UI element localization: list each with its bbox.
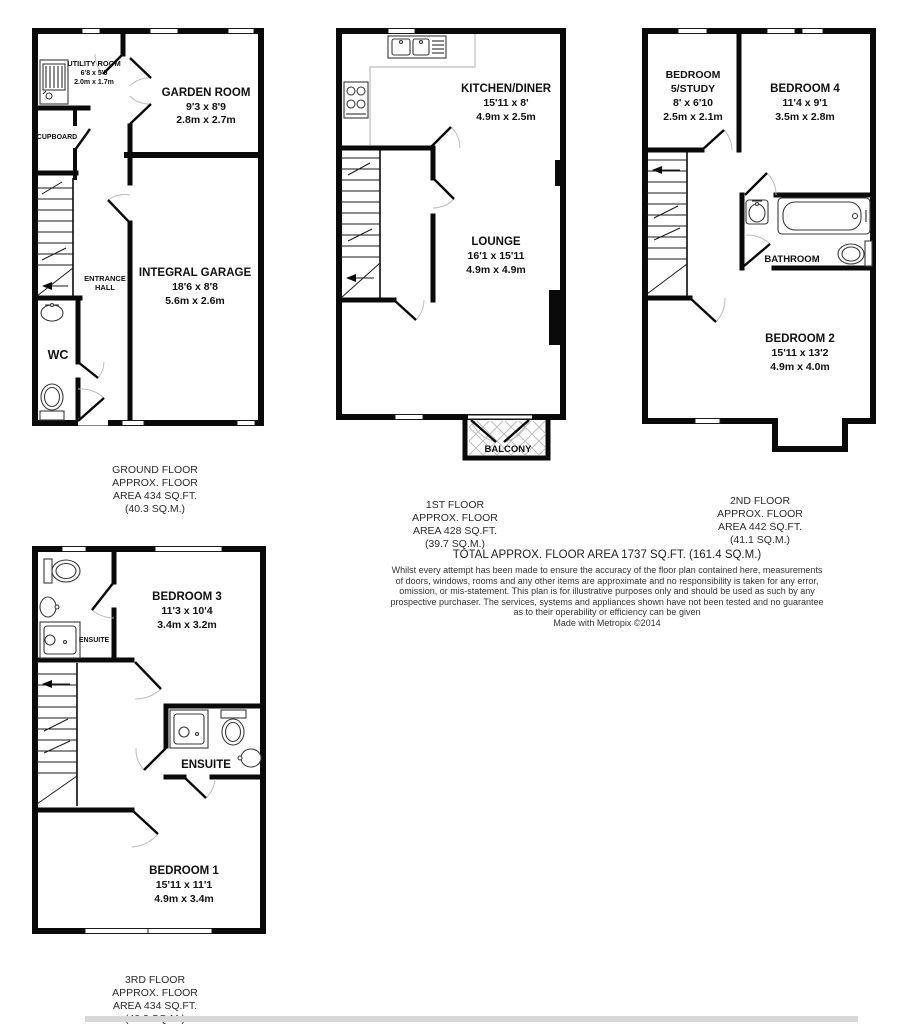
bedroom1-imperial: 15'11 x 11'1 xyxy=(156,879,213,891)
caption-line: 1ST FLOOR xyxy=(380,499,530,512)
basin-icon xyxy=(238,749,261,767)
caption-line: AREA 434 SQ.FT. xyxy=(80,1000,230,1013)
bedroom5-imperial: 8' x 6'10 xyxy=(673,97,713,109)
bathroom-label: BATHROOM xyxy=(764,254,819,265)
door-icon xyxy=(690,130,776,322)
bedroom3-imperial: 11'3 x 10'4 xyxy=(161,605,212,617)
shower-icon xyxy=(40,622,80,658)
bedroom3-metric: 3.4m x 3.2m xyxy=(157,619,217,631)
first-floor-plan: BALCONY KITCHEN/DINER 15'11 x 8' 4.9m x … xyxy=(336,28,568,468)
utility-room-imperial: 6'8 x 5'5 xyxy=(81,70,108,77)
bedroom2-metric: 4.9m x 4.0m xyxy=(770,361,830,373)
kitchen-metric: 4.9m x 2.5m xyxy=(476,111,536,123)
shower-icon xyxy=(170,710,208,748)
utility-room-metric: 2.0m x 1.7m xyxy=(74,79,114,86)
toilet-icon xyxy=(40,384,64,420)
summary-block: TOTAL APPROX. FLOOR AREA 1737 SQ.FT. (16… xyxy=(372,549,842,629)
bedroom5-label-2: 5/STUDY xyxy=(671,83,715,95)
caption-line: AREA 428 SQ.FT. xyxy=(380,525,530,538)
bottom-divider-bar xyxy=(85,1016,858,1022)
disclaimer-line: Whilst every attempt has been made to en… xyxy=(372,565,842,576)
sink-icon xyxy=(388,36,446,58)
washing-machine-icon xyxy=(40,60,68,104)
caption-line: AREA 434 SQ.FT. xyxy=(80,490,230,503)
balcony-label: BALCONY xyxy=(485,444,533,455)
kitchen-imperial: 15'11 x 8' xyxy=(483,97,528,109)
garden-room-imperial: 9'3 x 8'9 xyxy=(186,101,226,113)
caption-line: APPROX. FLOOR xyxy=(380,512,530,525)
toilet-icon xyxy=(221,710,246,745)
toilet-icon xyxy=(838,241,872,266)
toilet-icon xyxy=(44,559,80,583)
bedroom1-label: BEDROOM 1 xyxy=(149,865,219,877)
disclaimer-line: of doors, windows, rooms and any other i… xyxy=(372,576,842,587)
caption-line: (41.1 SQ.M.) xyxy=(685,534,835,547)
hob-icon xyxy=(344,82,368,118)
bedroom4-metric: 3.5m x 2.8m xyxy=(775,111,835,123)
caption-line: 3RD FLOOR xyxy=(80,974,230,987)
total-area-text: TOTAL APPROX. FLOOR AREA 1737 SQ.FT. (16… xyxy=(372,549,842,561)
floorplan-page: UTILITY ROOM 6'8 x 5'5 2.0m x 1.7m GARDE… xyxy=(0,0,914,1024)
disclaimer-line: as to their operability or efficiency ca… xyxy=(372,607,842,618)
disclaimer-line: prospective purchaser. The services, sys… xyxy=(372,597,842,608)
caption-line: 2ND FLOOR xyxy=(685,495,835,508)
stairs-icon xyxy=(37,663,77,806)
ensuite-top-label: ENSUITE xyxy=(79,637,110,644)
third-floor-plan: ENSUITE BEDROOM 3 11'3 x 10'4 3.4m x 3.2… xyxy=(32,546,270,936)
wc-label: WC xyxy=(48,348,69,362)
lounge-metric: 4.9m x 4.9m xyxy=(466,264,526,276)
garage-metric: 5.6m x 2.6m xyxy=(165,295,225,307)
basin-icon xyxy=(41,304,63,322)
lounge-label: LOUNGE xyxy=(471,236,521,248)
second-floor-plan: BEDROOM 5/STUDY 8' x 6'10 2.5m x 2.1m BE… xyxy=(642,28,878,454)
caption-line: AREA 442 SQ.FT. xyxy=(685,521,835,534)
ensuite-mid-label: ENSUITE xyxy=(181,759,231,771)
kitchen-label: KITCHEN/DINER xyxy=(461,83,552,95)
basin-icon xyxy=(40,597,59,617)
metropix-credit: Made with Metropix ©2014 xyxy=(372,618,842,629)
bedroom3-label: BEDROOM 3 xyxy=(152,591,222,603)
bedroom4-label: BEDROOM 4 xyxy=(770,83,840,95)
bath-icon xyxy=(778,198,870,234)
garage-label: INTEGRAL GARAGE xyxy=(139,267,252,279)
second-floor-caption: 2ND FLOOR APPROX. FLOOR AREA 442 SQ.FT. … xyxy=(685,495,835,547)
window-icon xyxy=(388,29,423,420)
bedroom4-imperial: 11'4 x 9'1 xyxy=(782,97,827,109)
door-icon xyxy=(394,127,460,320)
garage-imperial: 18'6 x 8'8 xyxy=(172,281,218,293)
caption-line: (40.3 SQ.M.) xyxy=(80,503,230,516)
bedroom1-metric: 4.9m x 3.4m xyxy=(154,893,214,905)
bedroom2-label: BEDROOM 2 xyxy=(765,333,835,345)
garden-room-label: GARDEN ROOM xyxy=(162,87,251,99)
bedroom5-metric: 2.5m x 2.1m xyxy=(663,111,723,123)
caption-line: GROUND FLOOR xyxy=(80,464,230,477)
stairs-icon xyxy=(647,150,687,296)
first-floor-caption: 1ST FLOOR APPROX. FLOOR AREA 428 SQ.FT. … xyxy=(380,499,530,551)
basin-icon xyxy=(746,200,768,224)
bedroom5-label-1: BEDROOM xyxy=(666,69,721,81)
caption-line: APPROX. FLOOR xyxy=(685,508,835,521)
balcony: BALCONY xyxy=(465,415,548,458)
utility-room-label: UTILITY ROOM xyxy=(67,59,121,68)
caption-line: APPROX. FLOOR xyxy=(80,477,230,490)
room-labels: KITCHEN/DINER 15'11 x 8' 4.9m x 2.5m LOU… xyxy=(461,83,552,276)
stairs-icon xyxy=(341,148,380,300)
disclaimer-line: omission, or mis-statement. This plan is… xyxy=(372,586,842,597)
lounge-imperial: 16'1 x 15'11 xyxy=(468,250,525,262)
entrance-hall-label-2: HALL xyxy=(95,283,115,292)
garden-room-metric: 2.8m x 2.7m xyxy=(176,114,236,126)
caption-line: APPROX. FLOOR xyxy=(80,987,230,1000)
cupboard-label: CUPBOARD xyxy=(37,134,77,141)
ground-floor-caption: GROUND FLOOR APPROX. FLOOR AREA 434 SQ.F… xyxy=(80,464,230,516)
stairs-icon xyxy=(37,178,73,296)
ground-floor-plan: UTILITY ROOM 6'8 x 5'5 2.0m x 1.7m GARDE… xyxy=(32,28,264,426)
entrance-hall-label-1: ENTRANCE xyxy=(84,274,126,283)
bedroom2-imperial: 15'11 x 13'2 xyxy=(772,347,829,359)
